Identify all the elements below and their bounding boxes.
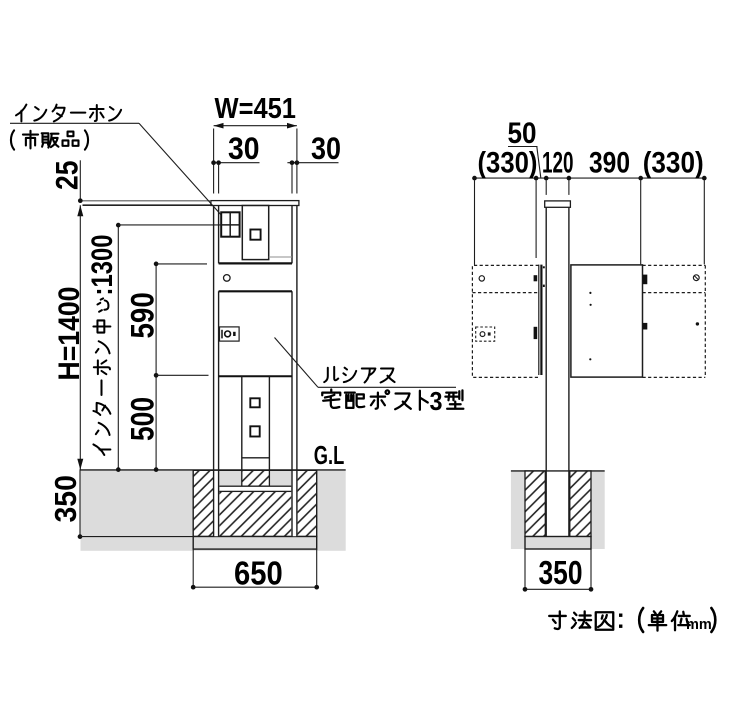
svg-text:590: 590 [125, 292, 161, 338]
svg-text:390: 390 [589, 147, 630, 180]
svg-text:120: 120 [542, 147, 574, 180]
svg-text:3: 3 [430, 386, 443, 416]
svg-text:50: 50 [508, 117, 537, 150]
svg-text:350: 350 [48, 475, 83, 522]
svg-text:mm: mm [686, 617, 712, 633]
svg-text:W=451: W=451 [215, 93, 297, 125]
svg-text:30: 30 [228, 130, 260, 166]
svg-text:500: 500 [125, 397, 161, 441]
svg-text:650: 650 [234, 555, 283, 592]
svg-text:30: 30 [311, 130, 341, 166]
svg-text:(330): (330) [643, 147, 704, 180]
svg-text:H=1400: H=1400 [53, 287, 86, 381]
svg-text:G.L: G.L [314, 440, 345, 470]
svg-text::1300: :1300 [86, 235, 119, 296]
svg-text:350: 350 [539, 554, 583, 591]
svg-text:25: 25 [49, 161, 85, 191]
svg-text:(330): (330) [478, 147, 538, 180]
